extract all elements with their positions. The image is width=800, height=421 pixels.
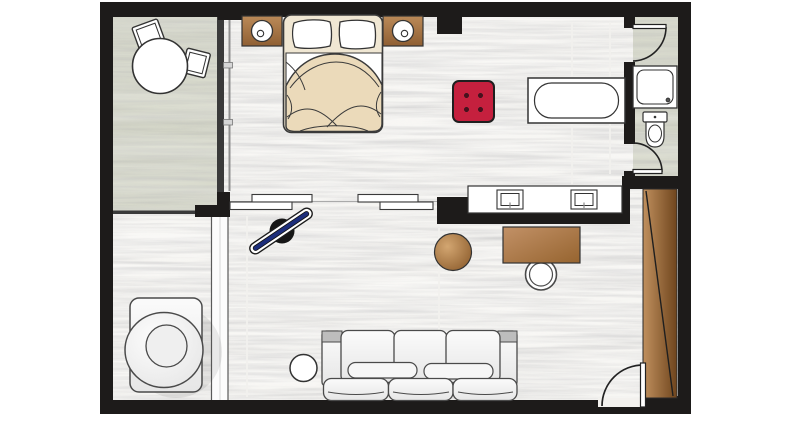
sink-left <box>497 190 523 209</box>
bathtub <box>528 78 625 123</box>
desk-chair <box>526 259 557 290</box>
vanity-wall-stub <box>437 197 468 224</box>
wardrobe <box>643 189 677 398</box>
vanity-counter <box>468 186 622 213</box>
sliding-panel <box>380 202 433 210</box>
bathtub-basin <box>535 83 619 118</box>
vanity-wall-band <box>468 212 630 224</box>
shower-drain-icon <box>666 98 670 102</box>
wall-column <box>437 15 462 34</box>
sofa-side-table <box>290 355 317 382</box>
terrace-sliding-window-track <box>229 15 231 191</box>
sliding-panel <box>252 195 312 203</box>
sliding-panel <box>358 195 418 203</box>
wall-left <box>100 2 113 414</box>
double-vanity <box>468 186 622 213</box>
sofa-lumbar-pillow <box>424 364 493 380</box>
sofa-lumbar-pillow <box>348 363 417 379</box>
wall-top <box>100 2 690 17</box>
round-side-table <box>435 234 472 271</box>
pillow-left <box>293 20 332 49</box>
red-pouf <box>453 81 494 122</box>
pillow-right <box>339 20 375 49</box>
double-bed <box>284 15 383 133</box>
partition-wall-stub-h <box>195 205 230 217</box>
wall-right <box>678 2 691 414</box>
floor-plan-image <box>0 0 800 421</box>
entry-door-threshold <box>598 398 645 407</box>
three-seat-sofa <box>322 331 517 401</box>
floor-plan-svg <box>0 0 800 421</box>
sink-right <box>571 190 597 209</box>
wall-connector <box>622 176 630 216</box>
terrace-glazing-frame <box>217 12 224 193</box>
toilet <box>643 112 667 147</box>
armchair-cushion <box>146 325 187 367</box>
desk <box>503 227 580 263</box>
sofa-seat-cushions <box>324 379 518 401</box>
shower-tray <box>633 66 677 108</box>
terrace-round-table <box>133 39 188 94</box>
sliding-panel <box>230 202 292 210</box>
terrace-window-sill <box>113 211 197 215</box>
bathroom-wall-bottom <box>622 176 690 189</box>
